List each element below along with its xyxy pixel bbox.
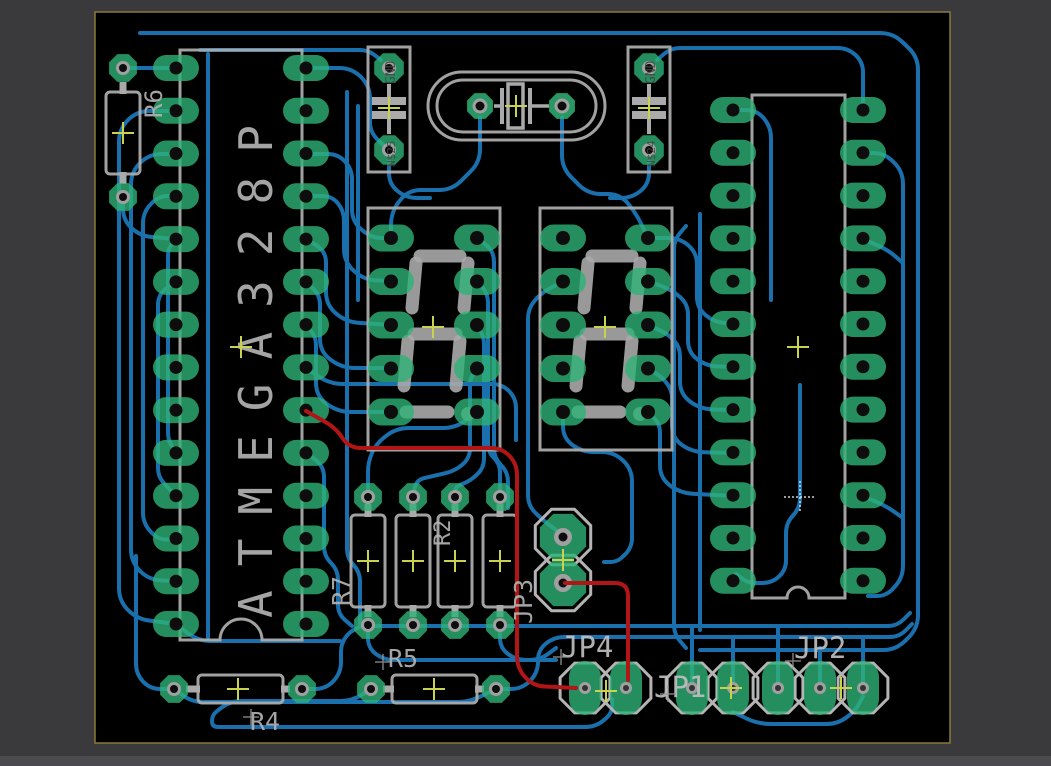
pad-hole xyxy=(556,362,570,376)
pad-hole xyxy=(857,189,870,202)
pad-hole xyxy=(641,275,655,289)
pad-hole xyxy=(476,102,485,111)
pad-hole xyxy=(857,403,870,416)
pad-hole xyxy=(300,190,313,203)
pad-hole xyxy=(857,318,870,331)
pad-hole xyxy=(170,575,183,588)
pad-hole xyxy=(582,685,588,691)
pad-hole xyxy=(496,621,504,629)
ref-label[interactable]: GND xyxy=(384,60,399,84)
pad-hole xyxy=(857,574,870,587)
pad-hole xyxy=(409,621,417,629)
pad-hole xyxy=(857,489,870,502)
pad-hole xyxy=(170,446,183,459)
pad-hole xyxy=(300,275,313,288)
pad-hole xyxy=(451,621,459,629)
pad-hole xyxy=(300,489,313,502)
pad-hole xyxy=(300,618,313,631)
pad-hole xyxy=(409,493,417,501)
pad-hole xyxy=(170,532,183,545)
pad-hole xyxy=(641,231,655,245)
ref-label[interactable]: N$25 xyxy=(385,141,398,168)
pad-hole xyxy=(857,232,870,245)
pad-hole xyxy=(857,446,870,459)
pad-hole xyxy=(727,403,740,416)
pad-hole xyxy=(556,405,570,419)
pad-hole xyxy=(451,493,459,501)
pad-hole xyxy=(775,685,781,691)
pad-hole xyxy=(556,231,570,245)
pad-hole xyxy=(364,621,372,629)
pad-hole xyxy=(559,533,568,542)
pad-hole xyxy=(727,446,740,459)
pad-hole xyxy=(367,685,375,693)
ref-label[interactable]: GND xyxy=(644,60,659,84)
pad-hole xyxy=(623,685,629,691)
pad-hole xyxy=(170,190,183,203)
pad-hole xyxy=(384,362,398,376)
pad-hole xyxy=(384,231,398,245)
pad-hole xyxy=(170,404,183,417)
board-editor-canvas[interactable]: ATMEGA328PR6R7R2JP3R5R4JP4JP1JP2GNDN$25G… xyxy=(0,0,1051,766)
pad-hole xyxy=(727,275,740,288)
pad-hole xyxy=(492,685,500,693)
pad-hole xyxy=(556,318,570,332)
pad-hole xyxy=(300,233,313,246)
pad-hole xyxy=(727,146,740,159)
pad-hole xyxy=(170,361,183,374)
ref-label[interactable]: JP4 xyxy=(561,630,613,664)
pad-hole xyxy=(300,361,313,374)
pad-hole xyxy=(857,360,870,373)
pad-hole xyxy=(300,147,313,160)
pad-hole xyxy=(727,360,740,373)
pad-hole xyxy=(170,489,183,502)
pad-hole xyxy=(857,532,870,545)
pad-hole xyxy=(860,685,866,691)
pad-hole xyxy=(300,318,313,331)
pad-hole xyxy=(300,575,313,588)
pad-hole xyxy=(300,104,313,117)
ref-label[interactable]: ATMEGA328P xyxy=(229,101,283,618)
pad-hole xyxy=(170,233,183,246)
pad-hole xyxy=(641,362,655,376)
ref-label[interactable]: JP3 xyxy=(509,579,538,624)
pad-hole xyxy=(170,685,178,693)
ref-label[interactable]: R4 xyxy=(250,707,280,736)
pad-hole xyxy=(170,618,183,631)
pad-hole xyxy=(727,489,740,502)
ref-label[interactable]: R2 xyxy=(431,520,456,547)
pad-hole xyxy=(384,405,398,419)
pad-hole xyxy=(857,146,870,159)
pad-hole xyxy=(641,405,655,419)
pad-hole xyxy=(470,231,484,245)
pad-hole xyxy=(470,362,484,376)
pad-hole xyxy=(298,685,306,693)
ref-label[interactable]: JP1 xyxy=(654,670,706,704)
pad-hole xyxy=(384,318,398,332)
pad-hole xyxy=(727,232,740,245)
pad-hole xyxy=(300,62,313,75)
ref-label[interactable]: R5 xyxy=(388,644,418,673)
pad-hole xyxy=(119,193,127,201)
pad-hole xyxy=(727,104,740,117)
pad-hole xyxy=(364,493,372,501)
pad-hole xyxy=(857,275,870,288)
pad-hole xyxy=(300,446,313,459)
pad-hole xyxy=(119,64,127,72)
pad-hole xyxy=(170,62,183,75)
pad-hole xyxy=(558,102,567,111)
window-bottom-edge xyxy=(0,756,1051,766)
ref-label[interactable]: R6 xyxy=(140,89,168,118)
pad-hole xyxy=(496,493,504,501)
ref-label[interactable]: R7 xyxy=(327,576,356,606)
pad-hole xyxy=(300,532,313,545)
pad-hole xyxy=(170,147,183,160)
pad-hole xyxy=(727,574,740,587)
pad-hole xyxy=(384,275,398,289)
pad-hole xyxy=(170,275,183,288)
pad-hole xyxy=(727,318,740,331)
pad-hole xyxy=(556,275,570,289)
pad-hole xyxy=(170,318,183,331)
ref-label[interactable]: JP2 xyxy=(794,631,846,665)
pad-hole xyxy=(727,532,740,545)
pad-hole xyxy=(641,318,655,332)
application-window: ATMEGA328PR6R7R2JP3R5R4JP4JP1JP2GNDN$25G… xyxy=(0,0,1051,766)
pad-hole xyxy=(470,405,484,419)
pad-hole xyxy=(470,275,484,289)
ref-label[interactable]: N$24 xyxy=(645,140,658,167)
pad-hole xyxy=(727,189,740,202)
pad-hole xyxy=(470,318,484,332)
pad-hole xyxy=(857,104,870,117)
pad-hole xyxy=(170,104,183,117)
pad-hole xyxy=(817,685,823,691)
